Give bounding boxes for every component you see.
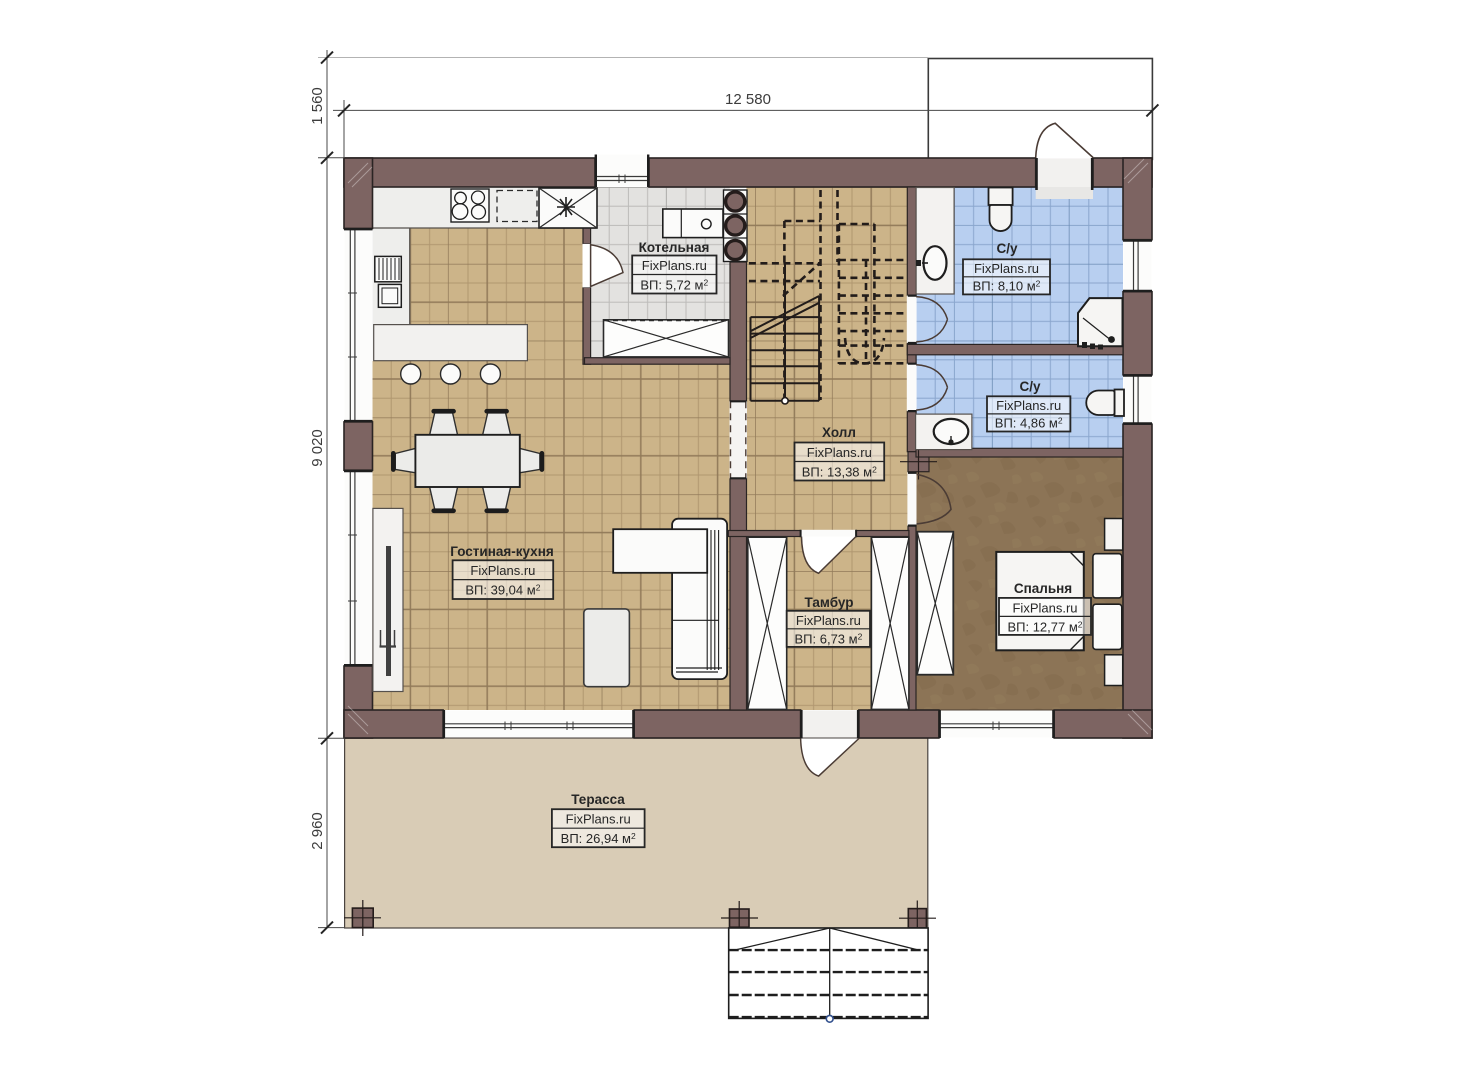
svg-text:Терасса: Терасса: [571, 792, 625, 807]
svg-text:Холл: Холл: [822, 425, 856, 440]
svg-text:2 960: 2 960: [309, 812, 326, 850]
svg-text:FixPlans.ru: FixPlans.ru: [807, 445, 872, 460]
svg-text:ВП: 6,73 м2: ВП: 6,73 м2: [794, 632, 862, 647]
svg-text:С/у: С/у: [1019, 379, 1041, 394]
svg-text:ВП: 4,86 м2: ВП: 4,86 м2: [995, 416, 1063, 431]
svg-text:1 560: 1 560: [309, 87, 326, 125]
svg-text:FixPlans.ru: FixPlans.ru: [974, 261, 1039, 276]
svg-text:FixPlans.ru: FixPlans.ru: [796, 613, 861, 628]
svg-text:Котельная: Котельная: [639, 240, 710, 255]
svg-text:12 580: 12 580: [725, 91, 771, 108]
svg-text:ВП: 8,10 м2: ВП: 8,10 м2: [973, 279, 1041, 294]
svg-text:FixPlans.ru: FixPlans.ru: [642, 258, 707, 273]
svg-text:ВП: 13,38 м2: ВП: 13,38 м2: [802, 465, 877, 480]
svg-text:9 020: 9 020: [309, 429, 326, 467]
svg-text:FixPlans.ru: FixPlans.ru: [1012, 600, 1077, 615]
svg-text:FixPlans.ru: FixPlans.ru: [470, 563, 535, 578]
svg-text:ВП: 39,04 м2: ВП: 39,04 м2: [465, 583, 540, 598]
svg-text:ВП: 5,72 м2: ВП: 5,72 м2: [640, 278, 708, 293]
svg-text:FixPlans.ru: FixPlans.ru: [566, 812, 631, 827]
svg-text:С/у: С/у: [996, 241, 1018, 256]
svg-text:ВП: 12,77 м2: ВП: 12,77 м2: [1007, 620, 1082, 635]
svg-text:Тамбур: Тамбур: [805, 595, 854, 610]
svg-text:ВП: 26,94 м2: ВП: 26,94 м2: [561, 831, 636, 846]
svg-text:Гостиная-кухня: Гостиная-кухня: [450, 544, 553, 559]
svg-text:FixPlans.ru: FixPlans.ru: [996, 398, 1061, 413]
svg-text:Спальня: Спальня: [1014, 581, 1072, 596]
